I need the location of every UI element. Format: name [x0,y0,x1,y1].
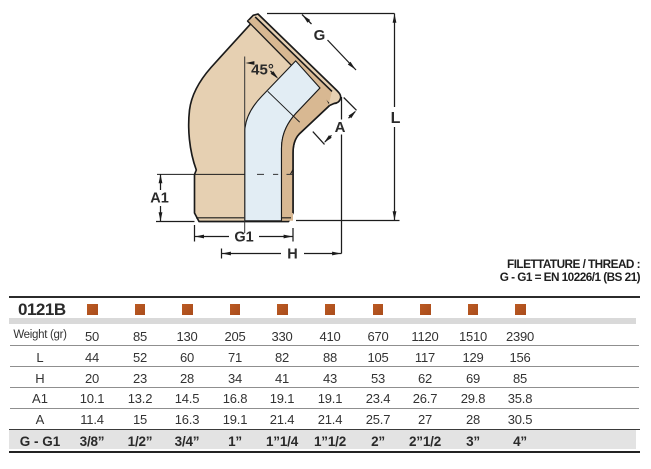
svg-text:H: H [287,247,297,263]
svg-text:45°: 45° [251,62,274,79]
svg-text:A1: A1 [150,191,169,207]
svg-text:L: L [391,110,401,127]
svg-text:G: G [314,27,326,44]
svg-text:G1: G1 [234,230,253,246]
svg-text:A: A [335,119,346,136]
